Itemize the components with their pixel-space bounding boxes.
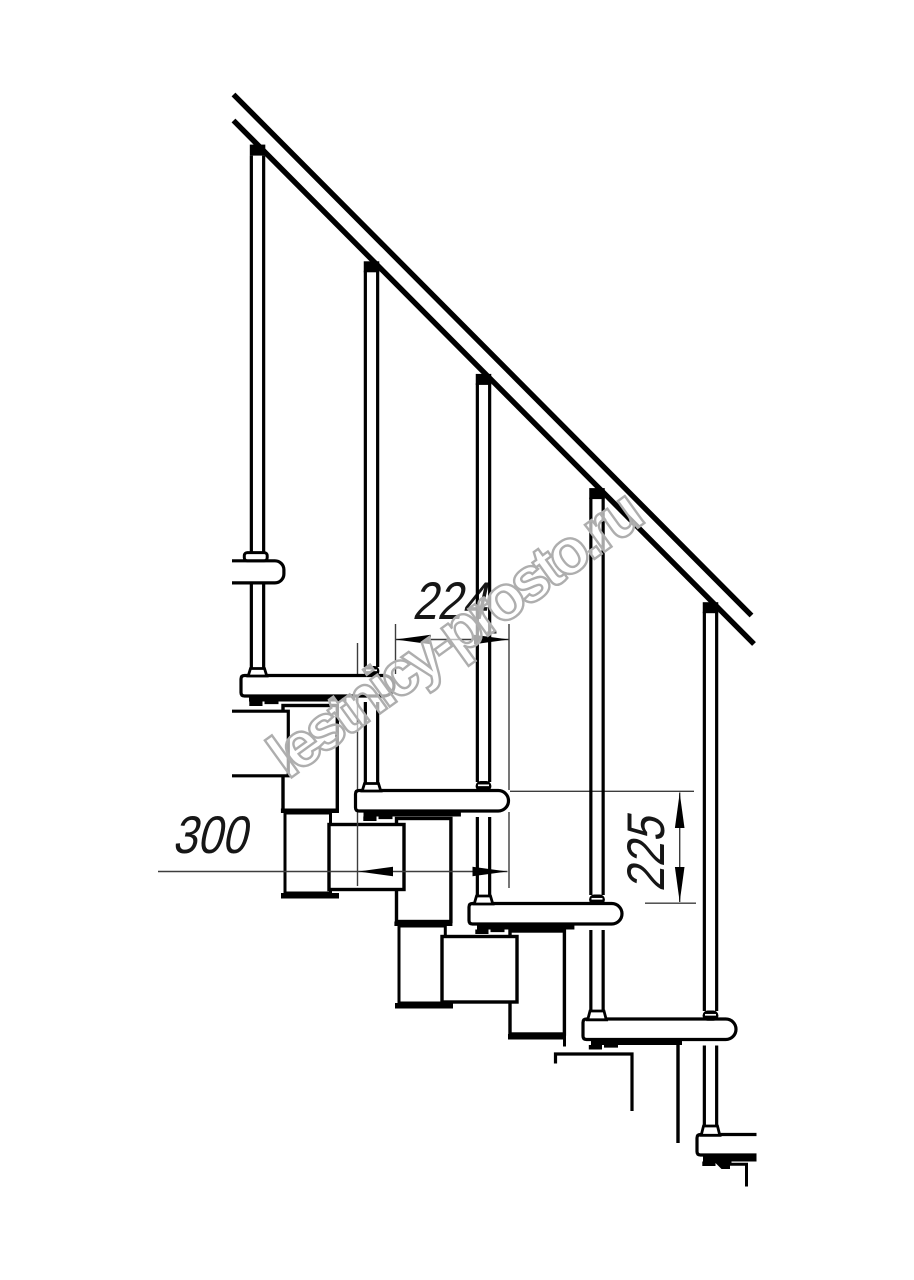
svg-text:300: 300 [169,805,257,865]
svg-text:225: 225 [616,807,676,895]
